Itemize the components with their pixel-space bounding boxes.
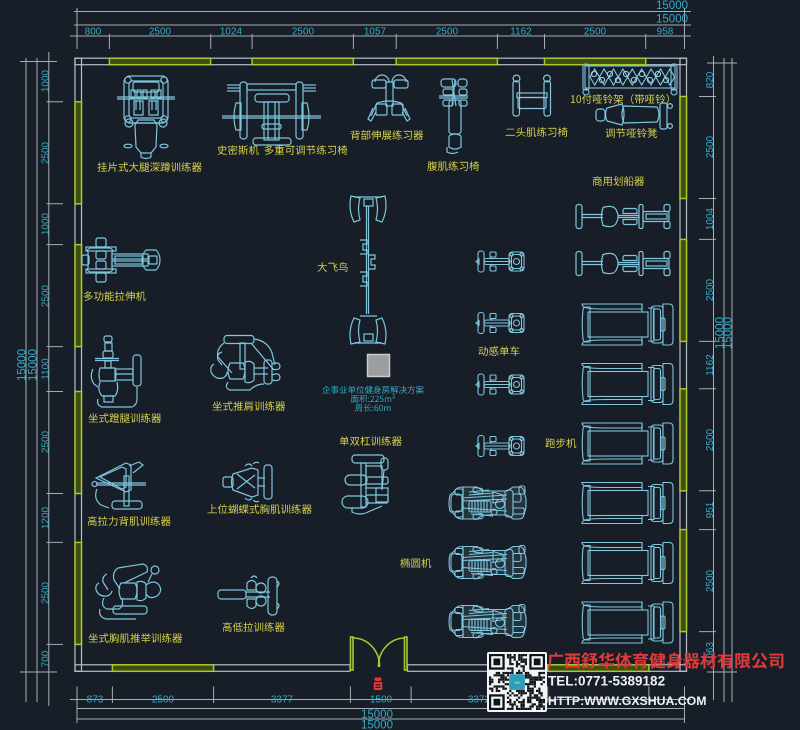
svg-text:958: 958	[657, 27, 674, 38]
svg-text:2500: 2500	[149, 27, 172, 38]
svg-text:2500: 2500	[436, 27, 459, 38]
svg-text:1004: 1004	[705, 207, 716, 230]
svg-text:2500: 2500	[705, 569, 716, 592]
svg-text:1162: 1162	[705, 354, 716, 376]
svg-text:951: 951	[705, 501, 716, 518]
svg-text:15000: 15000	[28, 349, 40, 381]
svg-text:2500: 2500	[40, 581, 51, 604]
svg-text:1024: 1024	[220, 27, 243, 38]
svg-text:1000: 1000	[40, 69, 51, 92]
svg-text:700: 700	[40, 650, 51, 667]
svg-text:2500: 2500	[292, 27, 315, 38]
svg-text:1100: 1100	[40, 358, 51, 380]
svg-text:2500: 2500	[705, 278, 716, 301]
svg-text:2500: 2500	[40, 430, 51, 453]
svg-text:800: 800	[85, 27, 102, 38]
svg-text:3377: 3377	[271, 695, 294, 706]
svg-text:1057: 1057	[364, 27, 387, 38]
svg-text:2500: 2500	[40, 141, 51, 164]
svg-text:2500: 2500	[40, 284, 51, 307]
svg-text:1500: 1500	[370, 695, 393, 706]
svg-text:1000: 1000	[40, 212, 51, 235]
svg-text:2500: 2500	[584, 27, 607, 38]
svg-text:15000: 15000	[656, 14, 688, 26]
svg-text:2500: 2500	[705, 135, 716, 158]
svg-text:2500: 2500	[705, 428, 716, 451]
svg-text:820: 820	[705, 71, 716, 88]
svg-text:15000: 15000	[656, 0, 688, 12]
svg-text:873: 873	[87, 695, 104, 706]
svg-text:HTTP:WWW.GXSHUA.COM: HTTP:WWW.GXSHUA.COM	[548, 694, 706, 708]
svg-text:SH: SH	[514, 680, 520, 685]
svg-text:2500: 2500	[152, 695, 175, 706]
svg-text:15000: 15000	[723, 317, 735, 349]
svg-text:1162: 1162	[510, 27, 532, 38]
svg-text:TEL:0771-5389182: TEL:0771-5389182	[548, 674, 665, 689]
svg-text:15000: 15000	[361, 720, 393, 730]
svg-text:1200: 1200	[40, 506, 51, 529]
